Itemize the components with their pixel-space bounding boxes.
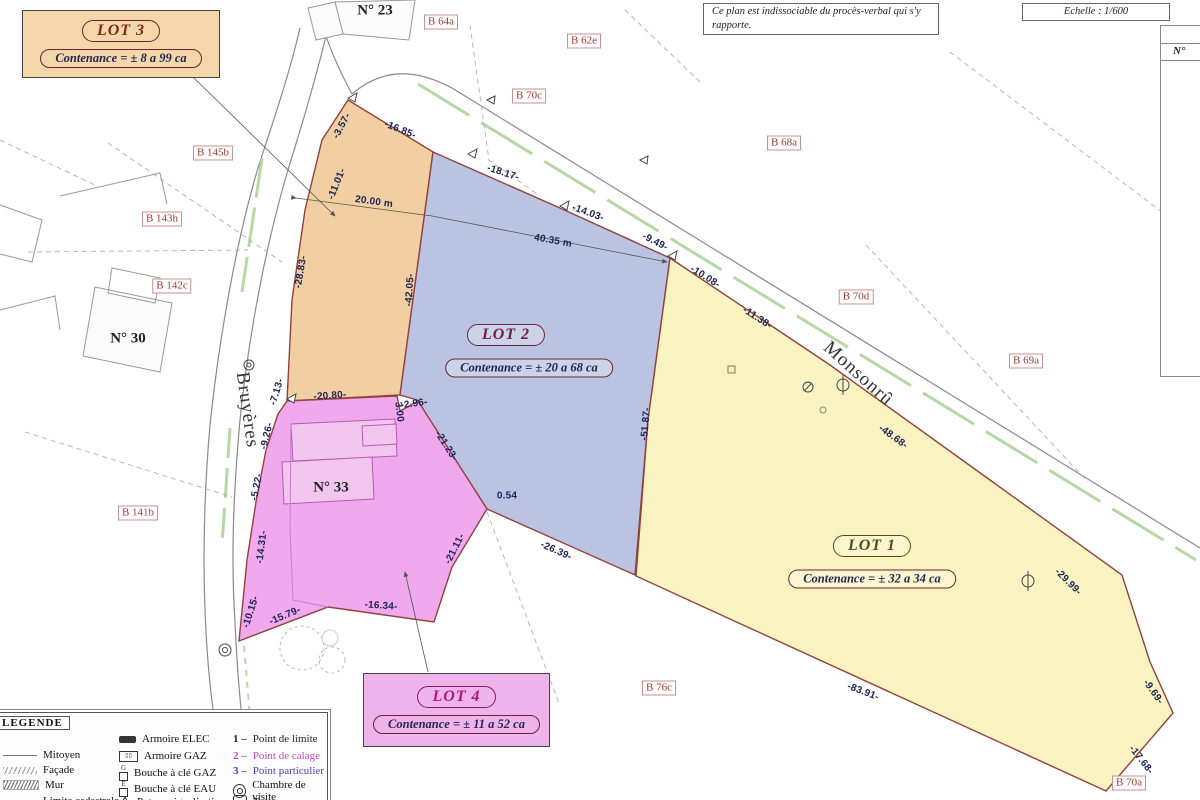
mur-hatch-icon [3, 780, 39, 790]
legend-label: Bouche à clé GAZ [134, 767, 216, 779]
legend-label: Point de limite [253, 733, 318, 745]
poteau-icon [119, 796, 131, 800]
bouche-eau-icon: E [119, 781, 128, 797]
lot1-contenance: Contenance = ± 32 a 34 ca [788, 570, 956, 589]
measurement-label: 0.54 [497, 491, 517, 502]
legend-label: Façade [43, 764, 74, 776]
parcel-id-label: B 68a [767, 136, 801, 151]
tree-symbols [280, 626, 345, 673]
parcel-id-label: B 64a [424, 15, 458, 30]
legend-label: Poteau signalisation [137, 796, 225, 800]
point-num: 1 – [233, 733, 247, 745]
lot4-info-box: LOT 4 Contenance = ± 11 a 52 ca [363, 673, 550, 747]
house-number-label: N° 23 [357, 3, 393, 20]
taque-icon [233, 795, 247, 800]
lot2-contenance: Contenance = ± 20 a 68 ca [445, 359, 613, 378]
point-num: 2 – [233, 750, 247, 762]
legend-label: Point de calage [253, 750, 320, 762]
parcel-id-label: B 142c [152, 279, 191, 294]
lot1-title: LOT 1 [833, 535, 911, 557]
measurement-label: -20.80- [313, 389, 347, 402]
parcel-id-label: B 70d [839, 290, 874, 305]
lot1-area [636, 258, 1173, 791]
legend-label: Mur [45, 779, 64, 791]
armoire-elec-icon [119, 736, 136, 743]
legend-label: Armoire ELEC [142, 733, 210, 745]
lot3-contenance: Contenance = ± 8 a 99 ca [40, 49, 201, 68]
lot3-title: LOT 3 [82, 20, 160, 42]
facade-hatch-icon [3, 767, 37, 774]
measurement-label: -16.34- [364, 599, 398, 612]
legend-label: Point particulier [253, 765, 324, 777]
plan-note: Ce plan est indissociable du procès-verb… [703, 3, 939, 35]
parcel-id-label: B 62e [567, 34, 601, 49]
legend-label: Bouche à clé EAU [134, 783, 216, 795]
legend-label: Taque [253, 796, 280, 800]
lot4-contenance: Contenance = ± 11 a 52 ca [373, 715, 540, 734]
measurement-label: 3.00 [392, 401, 405, 422]
plan-basemap [0, 0, 1200, 800]
legend-title: LEGENDE [0, 716, 70, 730]
cadastral-plan: Ce plan est indissociable du procès-verb… [0, 0, 1200, 800]
lot4-title: LOT 4 [417, 686, 495, 708]
point-num: 3 – [233, 765, 247, 777]
scale-label: Echelle : 1/600 [1022, 3, 1170, 21]
side-table: N° [1160, 25, 1200, 377]
parcel-id-label: B 70a [1112, 776, 1146, 791]
armoire-gaz-icon: ▯▯ [119, 751, 138, 762]
mitoyen-line-icon [3, 755, 37, 756]
lot3-info-box: LOT 3 Contenance = ± 8 a 99 ca [22, 10, 220, 78]
legend-label: Mitoyen [43, 749, 80, 761]
legend-label: Armoire GAZ [144, 750, 207, 762]
parcel-id-label: B 141b [118, 506, 158, 521]
lot2-title: LOT 2 [467, 324, 545, 346]
parcel-id-label: B 143h [142, 212, 182, 227]
side-table-header: N° [1173, 45, 1185, 57]
bouche-gaz-icon: G [119, 765, 128, 781]
house-number-label: N° 33 [313, 480, 349, 497]
parcel-id-label: B 145b [193, 146, 233, 161]
legend: LEGENDE Mitoyen Façade Mur Limite cadast… [0, 712, 328, 800]
legend-label: Limite cadastrale [43, 795, 119, 800]
house-number-label: N° 30 [110, 331, 146, 348]
measurement-label: -42.05- [403, 273, 416, 307]
parcel-id-label: B 70c [512, 89, 546, 104]
parcel-id-label: B 76c [642, 681, 676, 696]
parcel-id-label: B 69a [1009, 354, 1043, 369]
